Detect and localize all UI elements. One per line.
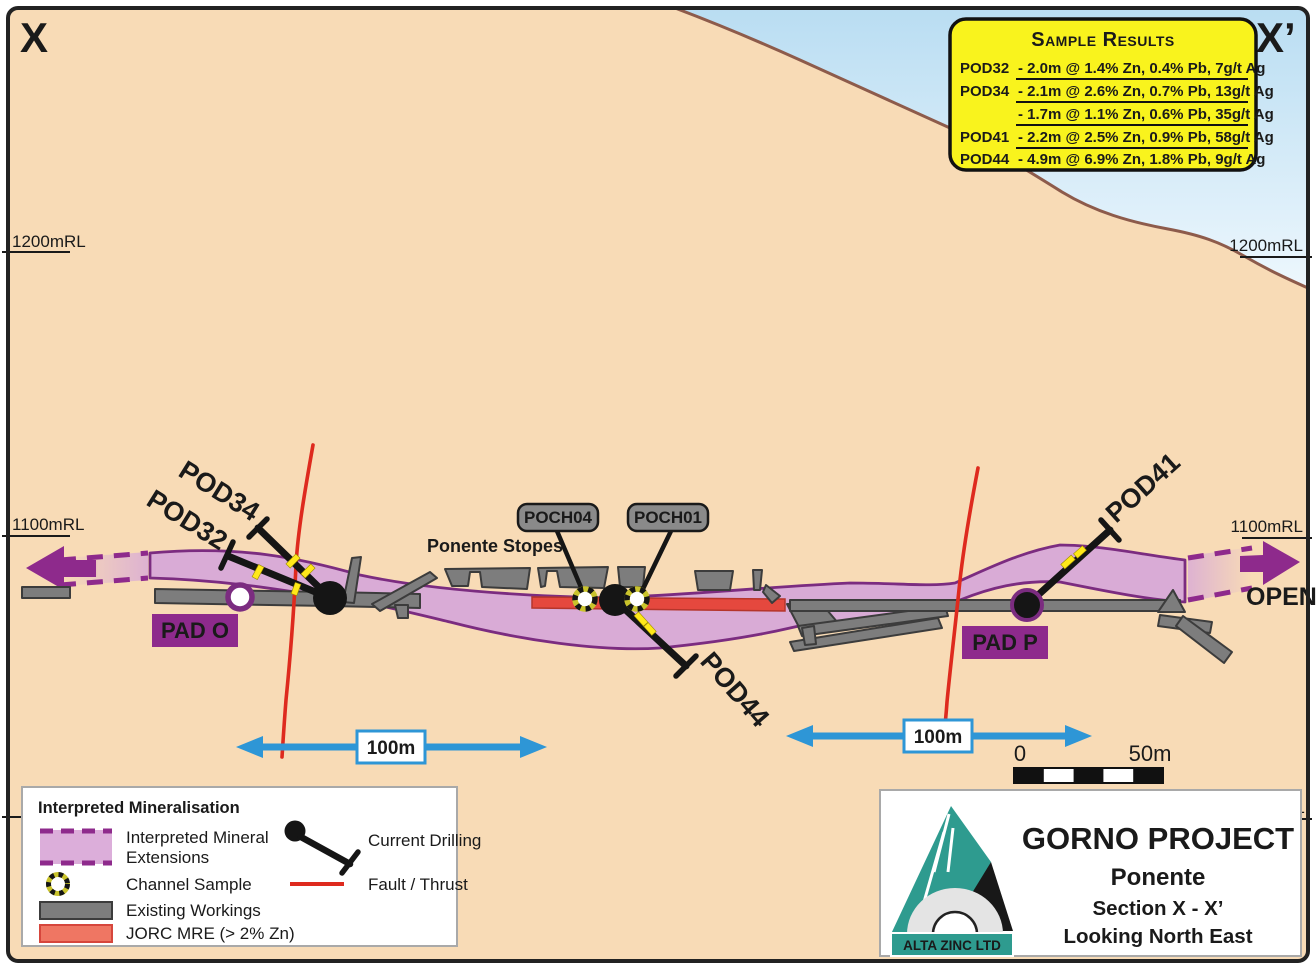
decline-stub xyxy=(802,626,816,645)
scale-arrow-left-label: 100m xyxy=(367,738,416,759)
legend-title: Interpreted Mineralisation xyxy=(38,799,240,817)
workings-right-drift xyxy=(790,600,1180,611)
legend-jorc-mre: JORC MRE (> 2% Zn) xyxy=(126,924,295,943)
elev-right-1100: 1100mRL xyxy=(1231,517,1303,536)
scale-bar-max: 50m xyxy=(1129,741,1172,766)
channel-sample-poch01 xyxy=(627,589,647,609)
workings-hook xyxy=(395,605,408,618)
sample-row-result: - 2.1m @ 2.6% Zn, 0.7% Pb, 13g/t Ag xyxy=(1018,83,1274,100)
section-marker-x: X xyxy=(20,14,48,61)
ponente-stopes-label: Ponente Stopes xyxy=(427,536,563,556)
section-canvas: 1200mRL 1200mRL 1100mRL 1100mRL RL xyxy=(0,0,1316,969)
legend-workings-swatch xyxy=(40,902,112,919)
sample-row-result: - 1.7m @ 1.1% Zn, 0.6% Pb, 35g/t Ag xyxy=(1018,106,1274,123)
open-label: OPEN xyxy=(1246,583,1316,611)
project-section: Section X - X’ xyxy=(1093,897,1224,920)
pad-o-label: PAD O xyxy=(161,618,229,643)
cross-section-figure: 1200mRL 1200mRL 1100mRL 1100mRL RL xyxy=(0,0,1316,969)
sample-results-title: Sample Results xyxy=(1031,29,1175,51)
pad-o-collar xyxy=(228,585,252,609)
legend-fault-thrust: Fault / Thrust xyxy=(368,875,468,894)
legend-channel-sample: Channel Sample xyxy=(126,875,252,894)
sample-row-hole: POD32 xyxy=(960,60,1009,77)
project-title: GORNO PROJECT xyxy=(1022,821,1294,856)
legend-channel-sample-icon xyxy=(49,875,68,894)
elev-left-1100: 1100mRL xyxy=(12,515,84,534)
jorc-mre-band xyxy=(532,597,785,611)
sample-row-hole: POD41 xyxy=(960,129,1009,146)
poch01-label: POCH01 xyxy=(634,508,702,527)
title-block: ALTA ZINC LTD GORNO PROJECT Ponente Sect… xyxy=(880,790,1301,956)
scale-arrow-right-label: 100m xyxy=(914,727,963,748)
legend-current-drilling: Current Drilling xyxy=(368,831,481,850)
sample-row-result: - 2.0m @ 1.4% Zn, 0.4% Pb, 7g/t Ag xyxy=(1018,60,1265,77)
sample-row-result: - 4.9m @ 6.9% Zn, 1.8% Pb, 9g/t Ag xyxy=(1018,151,1265,168)
project-view: Looking North East xyxy=(1063,925,1252,948)
stope-block-3 xyxy=(618,567,645,587)
elev-right-1200: 1200mRL xyxy=(1229,236,1303,255)
legend-existing-workings: Existing Workings xyxy=(126,901,261,920)
poch04-label: POCH04 xyxy=(524,508,593,527)
legend-mineral-ext-line2: Extensions xyxy=(126,848,209,867)
section-marker-x-prime: X’ xyxy=(1256,14,1296,61)
legend-box: Interpreted Mineralisation Interpreted M… xyxy=(22,787,481,946)
pad-p-tag: PAD P xyxy=(962,626,1048,659)
sample-row-result: - 2.2m @ 2.5% Zn, 0.9% Pb, 58g/t Ag xyxy=(1018,129,1274,146)
legend-jorc-swatch xyxy=(40,925,112,942)
sample-row-hole: POD44 xyxy=(960,151,1010,168)
pad-o-tag: PAD O xyxy=(152,614,238,647)
sample-row-hole: POD34 xyxy=(960,83,1010,100)
stope-block-5 xyxy=(753,570,762,590)
stope-block-4 xyxy=(695,571,733,590)
pod41-collar-dot xyxy=(1012,590,1042,620)
project-area: Ponente xyxy=(1111,864,1206,891)
legend-mineral-ext-swatch xyxy=(40,830,112,864)
stope-block-1 xyxy=(445,568,530,589)
elev-left-1200: 1200mRL xyxy=(12,232,86,251)
sample-results-box: Sample Results POD32 - 2.0m @ 1.4% Zn, 0… xyxy=(950,19,1274,170)
channel-sample-poch04 xyxy=(575,589,595,609)
scale-bar-zero: 0 xyxy=(1014,741,1026,766)
pod32-34-collar-dot xyxy=(313,581,347,615)
legend-mineral-ext-line1: Interpreted Mineral xyxy=(126,828,269,847)
pad-p-label: PAD P xyxy=(972,630,1038,655)
logo-company-name: ALTA ZINC LTD xyxy=(903,938,1001,953)
workings-isolated-bar xyxy=(22,587,70,598)
